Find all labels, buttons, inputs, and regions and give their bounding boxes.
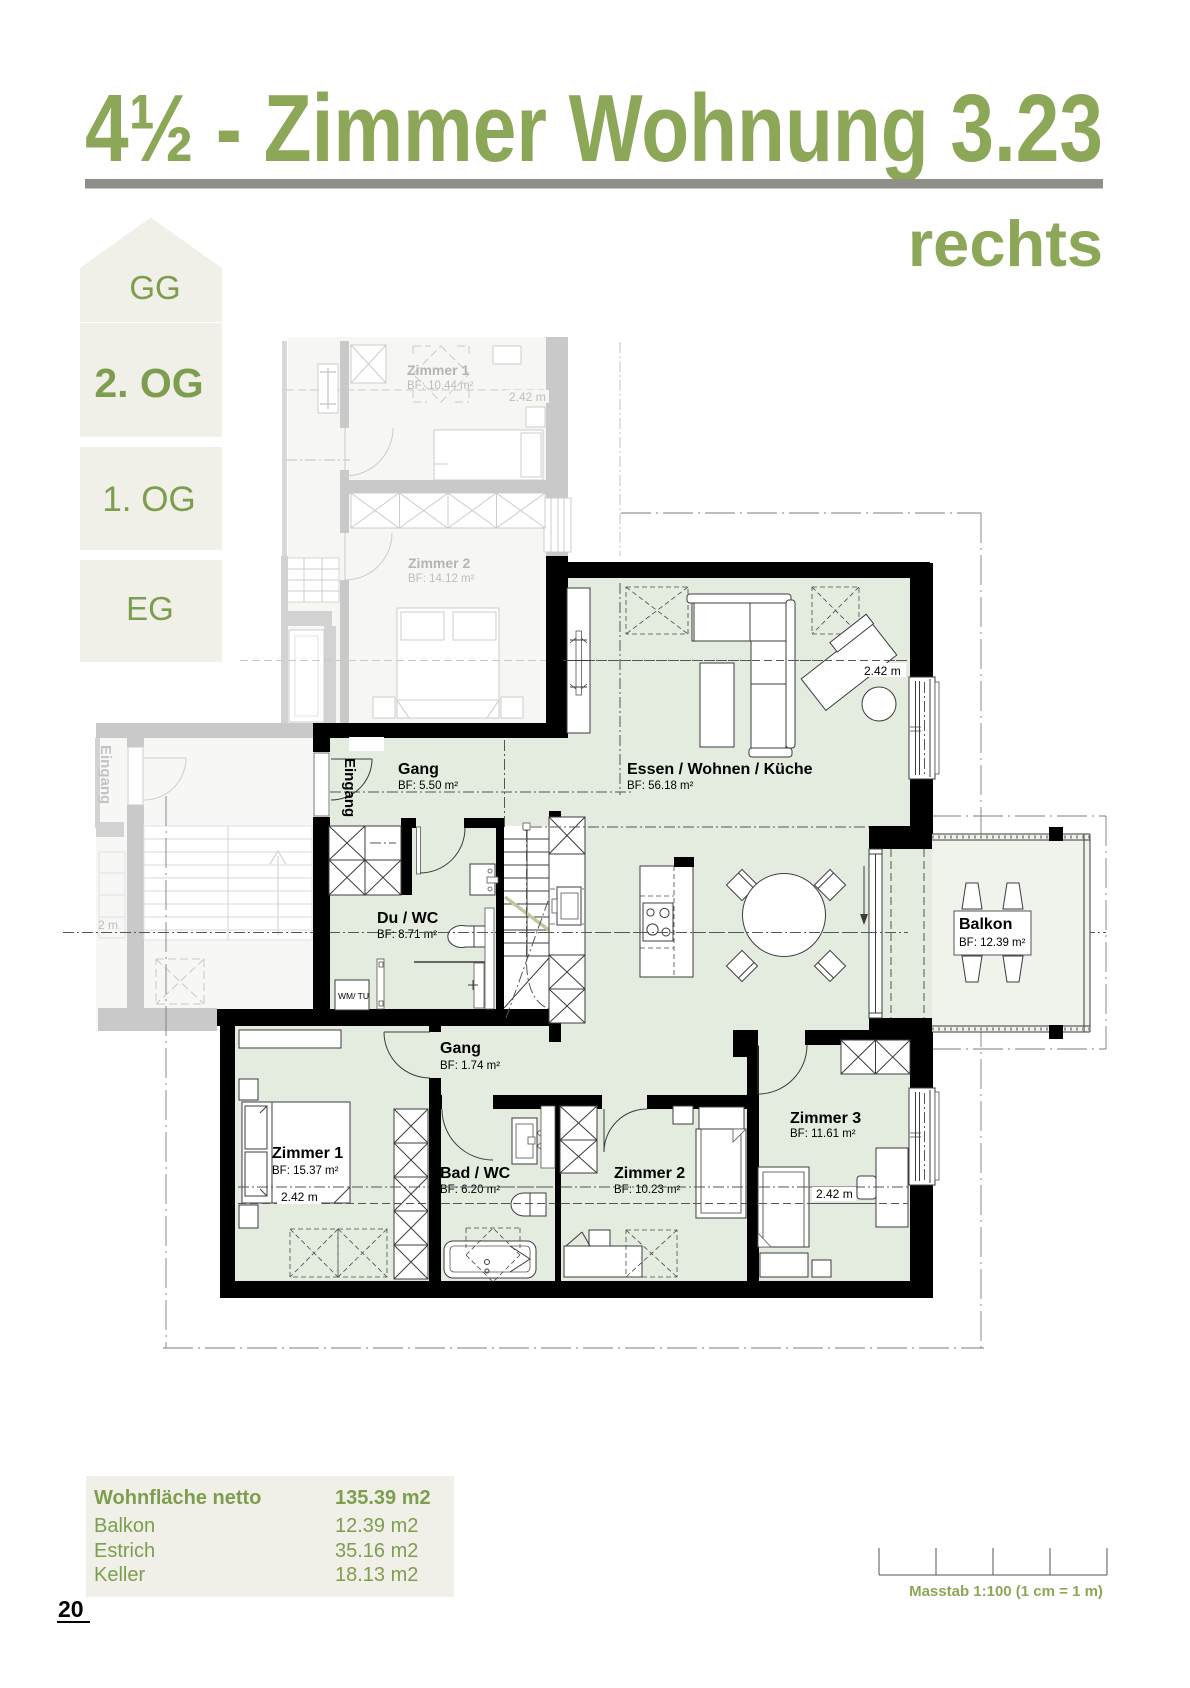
svg-text:Masstab 1:100 (1 cm = 1 m): Masstab 1:100 (1 cm = 1 m) [909, 1583, 1103, 1600]
svg-text:BF: 56.18 m²: BF: 56.18 m² [627, 780, 694, 792]
svg-text:BF: 11.61 m²: BF: 11.61 m² [790, 1128, 856, 1140]
svg-text:Balkon: Balkon [94, 1515, 155, 1537]
svg-text:18.13 m2: 18.13 m2 [335, 1564, 418, 1586]
svg-text:2 m: 2 m [98, 918, 118, 932]
svg-text:Bad / WC: Bad / WC [440, 1165, 511, 1182]
svg-text:BF: 12.39 m²: BF: 12.39 m² [959, 937, 1026, 949]
svg-text:Wohnfläche netto: Wohnfläche netto [94, 1487, 261, 1509]
svg-text:Zimmer 1: Zimmer 1 [272, 1145, 343, 1162]
svg-text:BF: 8.71 m²: BF: 8.71 m² [377, 929, 437, 941]
svg-text:Balkon: Balkon [959, 916, 1012, 933]
svg-text:2.42 m: 2.42 m [816, 1187, 853, 1201]
svg-text:135.39 m2: 135.39 m2 [335, 1487, 431, 1509]
svg-text:Du / WC: Du / WC [377, 910, 439, 927]
svg-text:Zimmer 1: Zimmer 1 [407, 362, 469, 378]
svg-text:Keller: Keller [94, 1564, 145, 1586]
svg-text:2.42 m: 2.42 m [281, 1190, 318, 1204]
svg-text:BF: 6.20 m²: BF: 6.20 m² [440, 1184, 500, 1196]
svg-text:BF: 10.44 m²: BF: 10.44 m² [407, 380, 474, 392]
svg-text:12.39 m2: 12.39 m2 [335, 1515, 418, 1537]
svg-text:4½ - Zimmer Wohnung 3.23: 4½ - Zimmer Wohnung 3.23 [85, 75, 1103, 182]
svg-text:Eingang: Eingang [341, 758, 358, 817]
svg-text:2.42 m: 2.42 m [509, 390, 546, 404]
svg-text:BF: 15.37 m²: BF: 15.37 m² [272, 1165, 339, 1177]
svg-text:rechts: rechts [908, 207, 1103, 280]
svg-text:EG: EG [126, 590, 174, 627]
svg-text:2.42 m: 2.42 m [864, 664, 901, 678]
svg-text:35.16 m2: 35.16 m2 [335, 1540, 418, 1562]
svg-text:BF: 1.74 m²: BF: 1.74 m² [440, 1060, 500, 1072]
svg-text:WM/ TU: WM/ TU [338, 991, 369, 1001]
svg-text:Gang: Gang [398, 761, 439, 778]
svg-text:Zimmer 2: Zimmer 2 [408, 555, 470, 571]
svg-text:Zimmer 2: Zimmer 2 [614, 1165, 685, 1182]
svg-text:Estrich: Estrich [94, 1540, 155, 1562]
svg-text:Zimmer 3: Zimmer 3 [790, 1110, 861, 1127]
svg-text:BF: 5.50 m²: BF: 5.50 m² [398, 780, 458, 792]
svg-text:BF: 10.23 m²: BF: 10.23 m² [614, 1184, 681, 1196]
svg-text:1. OG: 1. OG [102, 480, 195, 519]
svg-text:Gang: Gang [440, 1040, 481, 1057]
svg-text:BF: 14.12 m²: BF: 14.12 m² [408, 573, 475, 585]
svg-text:Eingang: Eingang [97, 745, 114, 804]
svg-text:20: 20 [58, 1596, 84, 1622]
svg-text:GG: GG [129, 269, 180, 306]
svg-text:2. OG: 2. OG [94, 360, 203, 406]
svg-text:Essen / Wohnen / Küche: Essen / Wohnen / Küche [627, 761, 813, 778]
